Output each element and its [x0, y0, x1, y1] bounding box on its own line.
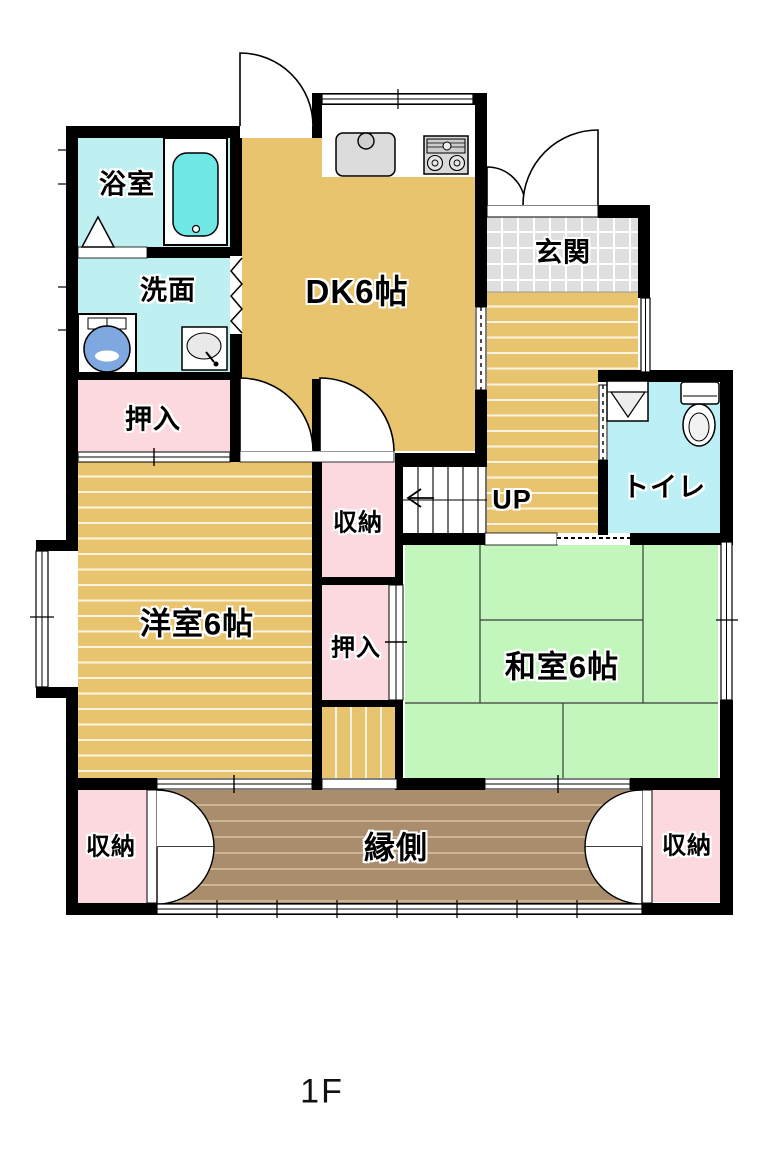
wall — [66, 247, 78, 258]
label-closet-center: 押入 — [331, 628, 381, 663]
label-western-room: 洋室6帖 — [140, 599, 254, 644]
wall — [598, 205, 650, 218]
wall — [720, 700, 733, 915]
japanese-room-north-doors — [485, 533, 630, 545]
wall — [147, 247, 242, 258]
japanese-room-east-window — [716, 542, 738, 700]
sliding-door-dk-hall — [476, 307, 486, 390]
label-veranda: 縁側 — [364, 823, 428, 868]
wall — [66, 126, 240, 138]
entrance-double-door — [487, 130, 598, 217]
west-wall-ticks — [58, 150, 66, 330]
wall — [638, 218, 650, 298]
wall — [395, 533, 485, 545]
label-storage-southwest: 収納 — [86, 827, 136, 862]
label-toilet: トイレ — [622, 466, 706, 505]
wall — [598, 460, 608, 535]
staircase — [403, 467, 487, 533]
wall — [395, 700, 403, 790]
wall — [630, 778, 733, 790]
wall — [630, 533, 733, 545]
toilet-door — [599, 385, 607, 460]
wall — [66, 372, 242, 380]
kitchen-counter — [322, 105, 475, 177]
accordion-door-washroom — [230, 256, 242, 334]
wall — [66, 903, 733, 915]
hall-east-window — [641, 298, 650, 372]
label-stairs-up: UP — [492, 485, 532, 516]
label-japanese-room: 和室6帖 — [505, 642, 619, 687]
wall — [475, 93, 487, 307]
wall — [66, 778, 157, 790]
wall — [312, 379, 322, 790]
door-arc-dk-north — [240, 53, 313, 126]
wall — [403, 453, 487, 467]
room-toilet — [608, 382, 720, 533]
label-closet-north: 押入 — [125, 398, 181, 437]
wall — [720, 382, 733, 542]
wall — [66, 126, 78, 540]
wall — [66, 698, 78, 915]
label-entrance: 玄関 — [535, 231, 591, 270]
wall — [312, 700, 403, 707]
floor-plan: 浴室 洗面 DK6帖 玄関 トイレ UP 押入 収納 押入 洋室6帖 和室6帖 … — [0, 0, 769, 1161]
corridor-threshold — [322, 779, 397, 789]
wall — [312, 93, 487, 105]
western-room-west-window — [30, 540, 78, 698]
label-storage-southeast: 収納 — [662, 826, 712, 861]
wall — [598, 370, 733, 382]
label-bathroom: 浴室 — [99, 163, 155, 202]
label-dining-kitchen: DK6帖 — [305, 265, 408, 313]
corridor — [322, 707, 397, 778]
wall — [230, 380, 242, 462]
wall — [322, 577, 395, 585]
wall — [395, 453, 403, 585]
label-washroom: 洗面 — [140, 269, 196, 308]
wall — [230, 138, 242, 258]
wall — [397, 778, 485, 790]
label-storage-center: 収納 — [333, 503, 383, 538]
hallway-upper — [487, 292, 638, 370]
floor-number-label: 1F — [300, 1073, 344, 1112]
